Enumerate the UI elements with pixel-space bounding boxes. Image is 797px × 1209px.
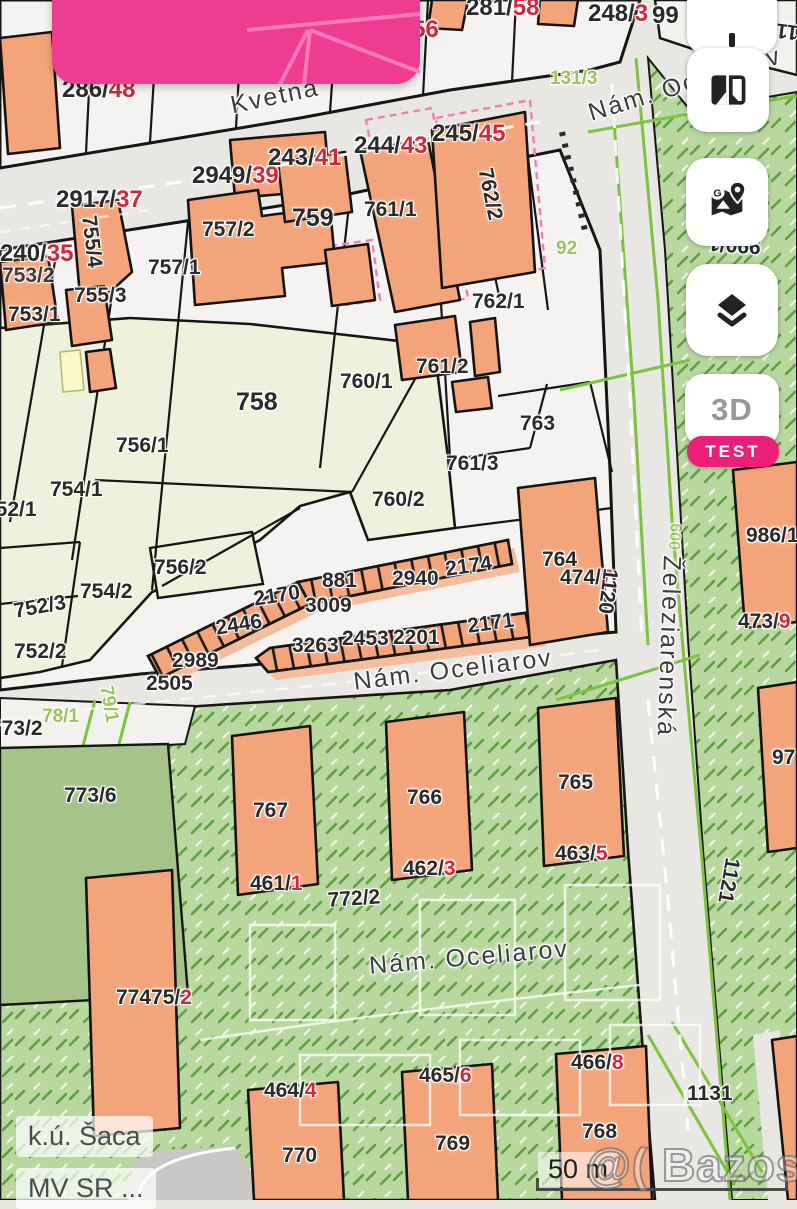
parcel-label: 754/1 (50, 478, 103, 502)
green-parcel-label: 78/1 (42, 706, 79, 728)
parcel-label: 462/3 (403, 857, 456, 881)
layers-button[interactable] (686, 264, 778, 356)
google-maps-icon: G (704, 179, 750, 225)
parcel-label: 473/9 (738, 610, 791, 634)
map-app: { "map": { "streets": { "kvetna": "Kvetn… (0, 0, 797, 1200)
scale-bar-tick (536, 1178, 539, 1191)
parcel-label: 760/2 (372, 488, 425, 512)
compare-maps-button[interactable] (687, 48, 769, 132)
parcel-label: 759 (292, 204, 334, 233)
parcel-label: 773/2 (0, 717, 43, 741)
parcel-label: 2949/39 (192, 162, 279, 190)
parcel-label: 248/3 (588, 0, 648, 28)
green-parcel-label: 131/3 (550, 68, 598, 90)
parcel-label: 466/8 (571, 1051, 624, 1075)
partial-top-button[interactable] (687, 0, 777, 54)
parcel-label: 754/2 (80, 580, 133, 604)
parcel-label: 769 (435, 1132, 470, 1156)
parcel-label: 2917/37 (56, 186, 143, 214)
parcel-label: 3263 (292, 634, 339, 658)
google-maps-button[interactable]: G (686, 158, 768, 246)
watermark: @( Bazos.sk (586, 1138, 797, 1192)
parcel-label: 244/43 (354, 132, 427, 160)
parcel-label: 758 (236, 388, 278, 417)
parcel-label: 461/1 (250, 872, 303, 896)
parcel-label: 3009 (305, 594, 352, 618)
parcel-label: 2453 (342, 627, 389, 651)
parcel-label: 2505 (146, 672, 193, 696)
parcel-label: 772/2 (327, 885, 381, 913)
parcel-label: 763 (520, 412, 555, 436)
map-source-label: MV SR ... (16, 1168, 156, 1209)
parcel-label: 99 (652, 2, 679, 30)
parcel-label: 752/1 (0, 498, 37, 522)
parcel-label: 755/3 (74, 284, 127, 308)
svg-text:G: G (713, 187, 721, 199)
parcel-label: 243/41 (268, 144, 341, 172)
parcel-label: 97 (772, 746, 795, 770)
parcel-label: 761/1 (364, 198, 417, 222)
parcel-label: 77475/2 (116, 986, 192, 1010)
parcel-label: 756/2 (154, 556, 207, 580)
parcel-label: 765 (558, 771, 593, 795)
parcel-label: 767 (253, 799, 288, 823)
parcel-label: 766 (407, 786, 442, 810)
parcel-label: 770 (282, 1144, 317, 1168)
parcel-label: 753/2 (2, 264, 55, 288)
parcel-label: 465/6 (419, 1064, 472, 1088)
partial-icon (729, 33, 735, 47)
parcel-label: 881 (322, 569, 357, 593)
parcel-label: 760/1 (340, 370, 393, 394)
parcel-label: 2940 (392, 567, 439, 591)
parcel-label: 245/45 (432, 120, 505, 148)
parcel-label: 761/3 (446, 452, 499, 476)
cadastral-area-label: k.ú. Šaca (16, 1116, 153, 1157)
highlighted-area-card[interactable] (52, 0, 420, 84)
parcel-label: 753/1 (8, 303, 61, 327)
parcel-label: 281/58 (466, 0, 539, 22)
parcel-label: 757/2 (202, 218, 255, 242)
parcel-label: 757/1 (148, 256, 201, 280)
parcel-label: 773/6 (64, 784, 117, 808)
parcel-label: 762/1 (472, 290, 525, 314)
highlight-lines (52, 0, 420, 84)
green-parcel-label: 600 (664, 522, 684, 550)
test-badge: TEST (687, 436, 779, 467)
parcel-label: 752/2 (14, 640, 67, 664)
parcel-label: 756/1 (116, 434, 169, 458)
parcel-label: 464/4 (264, 1079, 317, 1103)
parcel-label: 2201 (393, 626, 440, 650)
parcel-label: 463/5 (555, 842, 608, 866)
layers-icon (708, 286, 756, 334)
threed-label: 3D (711, 392, 753, 428)
compare-maps-icon (706, 68, 750, 112)
parcel-label: 986/1 (746, 524, 797, 548)
parcel-label: 2989 (172, 649, 219, 673)
parcel-label: 1131 (687, 1082, 733, 1106)
green-parcel-label: 92 (556, 238, 577, 260)
parcel-label: 761/2 (416, 355, 469, 379)
